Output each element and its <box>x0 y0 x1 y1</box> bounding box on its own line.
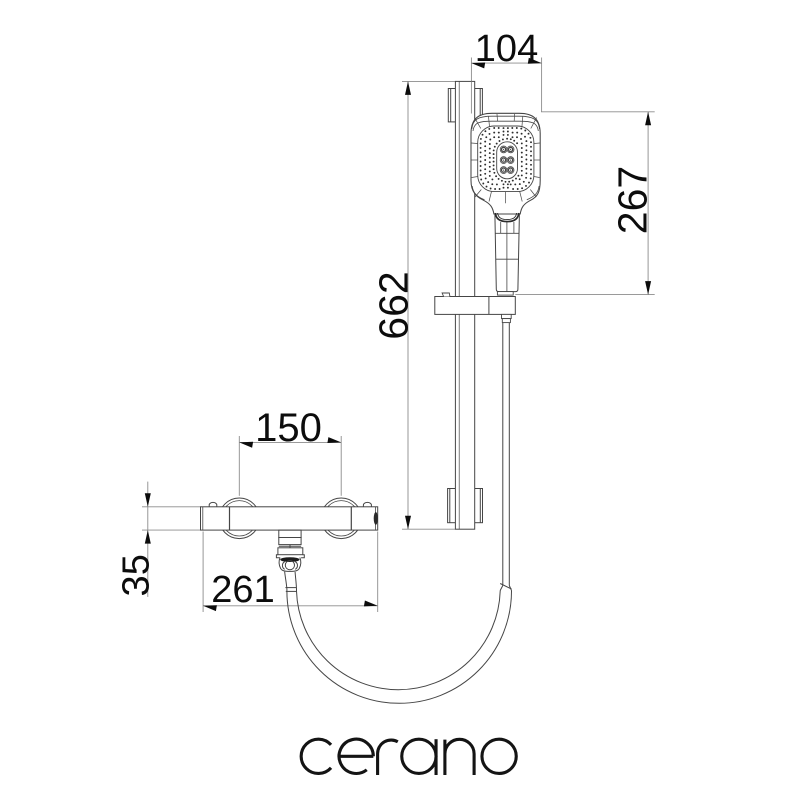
svg-text:104: 104 <box>475 28 538 70</box>
svg-text:662: 662 <box>370 271 416 339</box>
svg-text:35: 35 <box>115 554 157 596</box>
svg-text:150: 150 <box>255 406 322 450</box>
svg-text:267: 267 <box>609 166 655 234</box>
svg-text:261: 261 <box>211 569 274 611</box>
